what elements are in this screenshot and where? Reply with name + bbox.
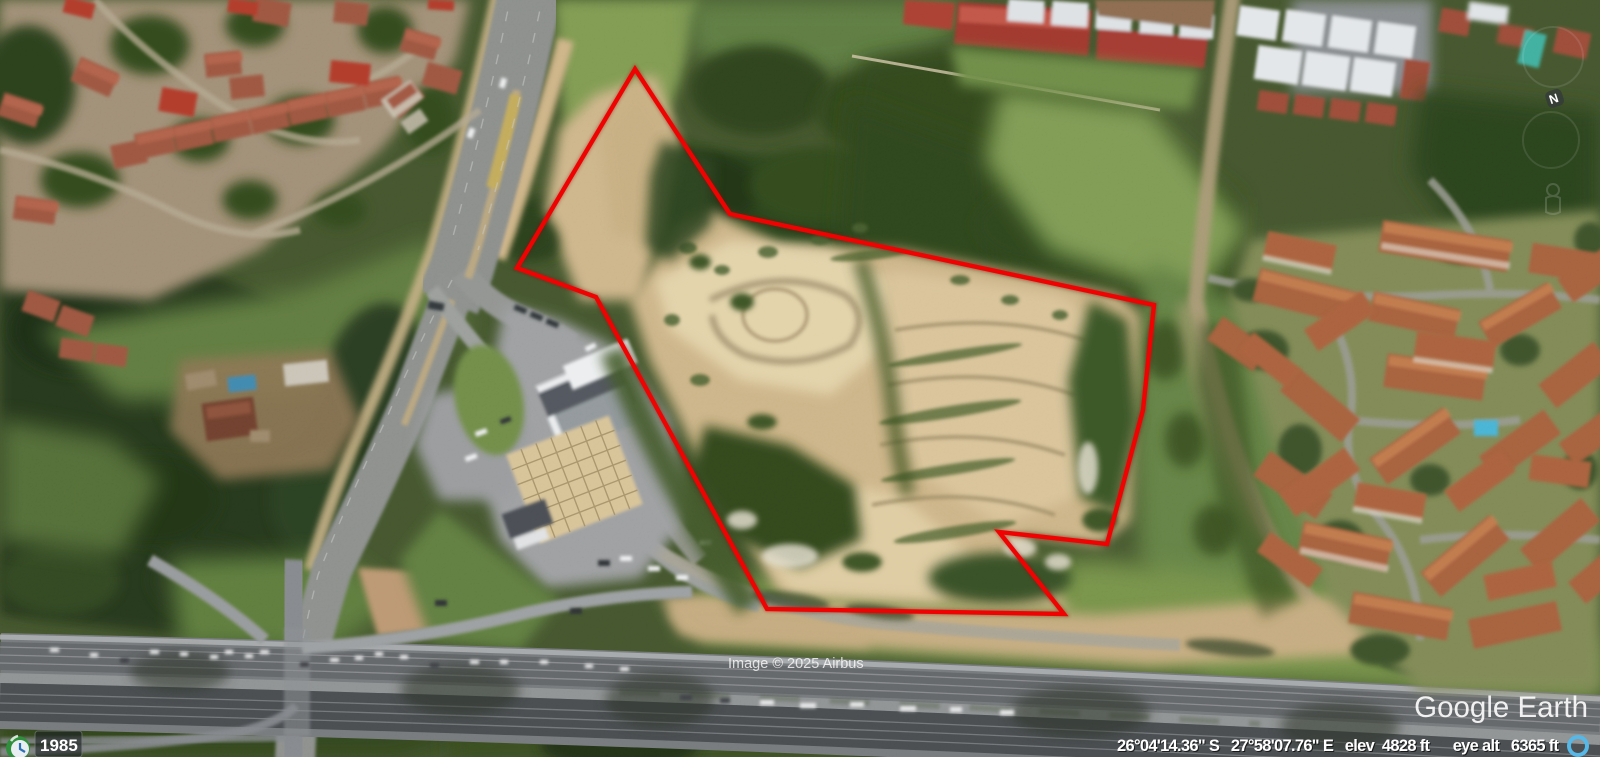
svg-text:Google Earth: Google Earth xyxy=(1414,691,1588,724)
svg-text:26°04'14.36" S 27°58'07.76": 26°04'14.36" S 27°58'07.76" E elev 4828 … xyxy=(1117,737,1560,755)
svg-text:1985: 1985 xyxy=(40,736,78,755)
svg-text:Image © 2025 Airbus: Image © 2025 Airbus xyxy=(728,656,864,672)
